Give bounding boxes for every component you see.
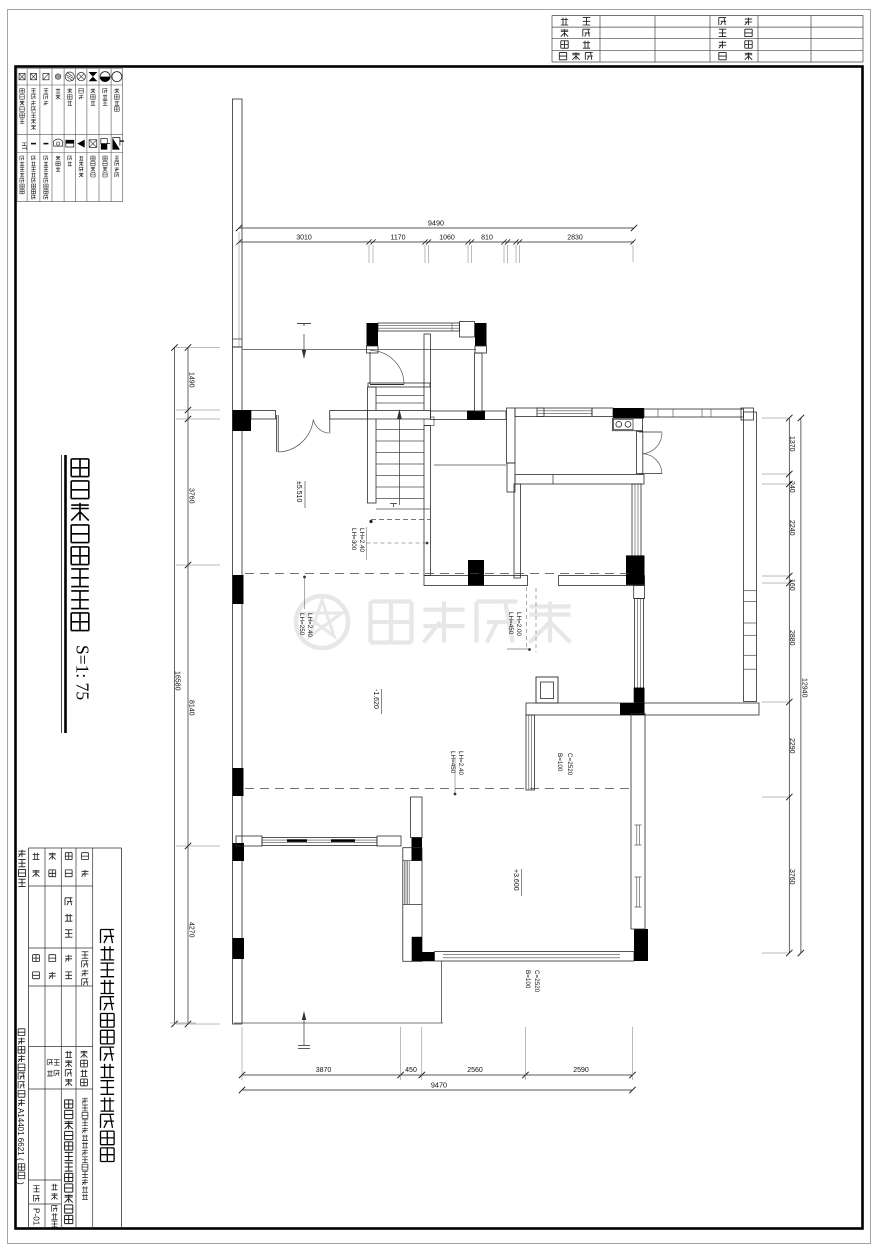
svg-text:12940: 12940 (801, 678, 808, 698)
svg-text:2830: 2830 (567, 235, 583, 242)
svg-text:HT: HT (20, 142, 26, 150)
svg-text:1060: 1060 (439, 235, 455, 242)
svg-text:P-01: P-01 (32, 1208, 41, 1226)
svg-text:3760: 3760 (788, 869, 795, 885)
svg-text:1170: 1170 (390, 235, 405, 242)
svg-text:810: 810 (481, 235, 493, 242)
svg-text:±5.510: ±5.510 (295, 481, 302, 502)
svg-text:2240: 2240 (788, 520, 795, 536)
svg-text:+3.600: +3.600 (512, 869, 519, 891)
svg-text:160: 160 (788, 579, 795, 591)
svg-text:1370: 1370 (788, 436, 795, 452)
svg-text:3760: 3760 (188, 488, 195, 504)
svg-text:): ) (16, 1182, 25, 1185)
svg-text:240: 240 (788, 481, 795, 493)
svg-text:9470: 9470 (431, 1081, 447, 1090)
svg-text:S=1: 75: S=1: 75 (73, 645, 93, 700)
svg-text:3010: 3010 (296, 235, 312, 242)
svg-text:A14401 6621: A14401 6621 (16, 1108, 25, 1156)
svg-text:9490: 9490 (428, 219, 444, 228)
svg-text:LH=300: LH=300 (350, 528, 357, 551)
svg-text:16580: 16580 (174, 671, 181, 691)
svg-text:LH=2.40: LH=2.40 (306, 613, 313, 637)
svg-text:4270: 4270 (188, 922, 195, 938)
svg-text:LH=2.00: LH=2.00 (515, 612, 522, 636)
svg-text:450: 450 (405, 1067, 417, 1074)
svg-text:LH=250: LH=250 (298, 613, 305, 636)
svg-text:2290: 2290 (788, 738, 795, 754)
svg-text:3870: 3870 (316, 1067, 332, 1074)
svg-text:LH=450: LH=450 (507, 612, 514, 635)
svg-text:(: ( (16, 1158, 25, 1161)
svg-text:-1.620: -1.620 (372, 689, 379, 709)
svg-text:2560: 2560 (467, 1067, 483, 1074)
svg-text:C=2520: C=2520 (566, 753, 573, 776)
svg-text:8140: 8140 (188, 700, 195, 716)
svg-text:LH=2.40: LH=2.40 (358, 528, 365, 552)
svg-text:B=100: B=100 (524, 970, 531, 989)
svg-text:LH=2.40: LH=2.40 (457, 751, 464, 775)
svg-text:B=100: B=100 (556, 753, 563, 772)
svg-text:2880: 2880 (788, 630, 795, 646)
svg-text:1490: 1490 (188, 372, 195, 388)
svg-text:2590: 2590 (573, 1067, 589, 1074)
svg-text:C=2520: C=2520 (533, 970, 540, 993)
